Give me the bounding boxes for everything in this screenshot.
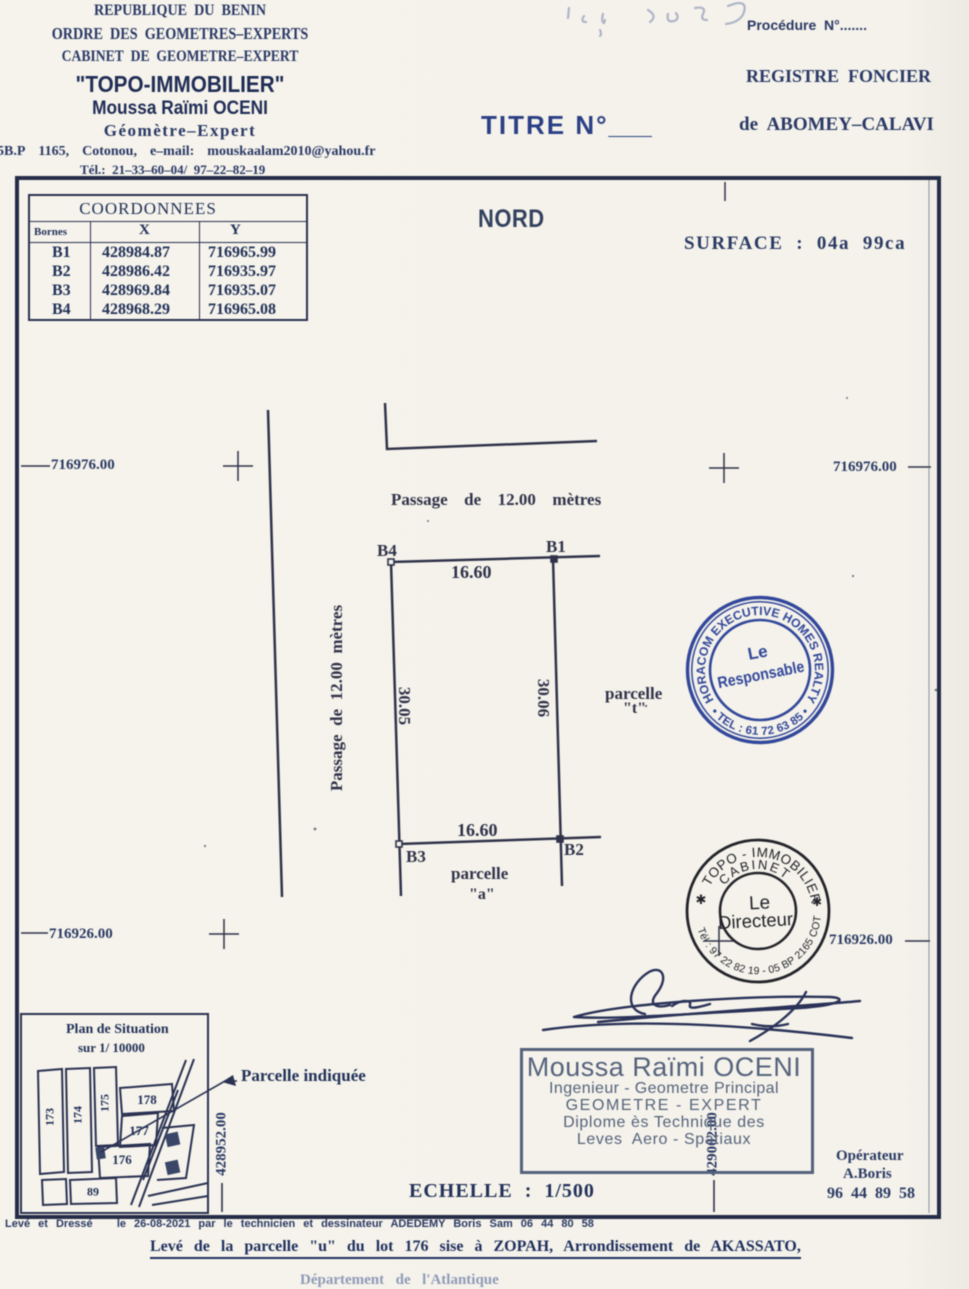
svg-text:✱: ✱ bbox=[696, 892, 707, 907]
svg-text:Responsable: Responsable bbox=[716, 659, 806, 692]
svg-text:✱: ✱ bbox=[812, 895, 822, 909]
svg-text:Directeur: Directeur bbox=[717, 908, 793, 933]
svg-text:Le: Le bbox=[746, 641, 769, 663]
